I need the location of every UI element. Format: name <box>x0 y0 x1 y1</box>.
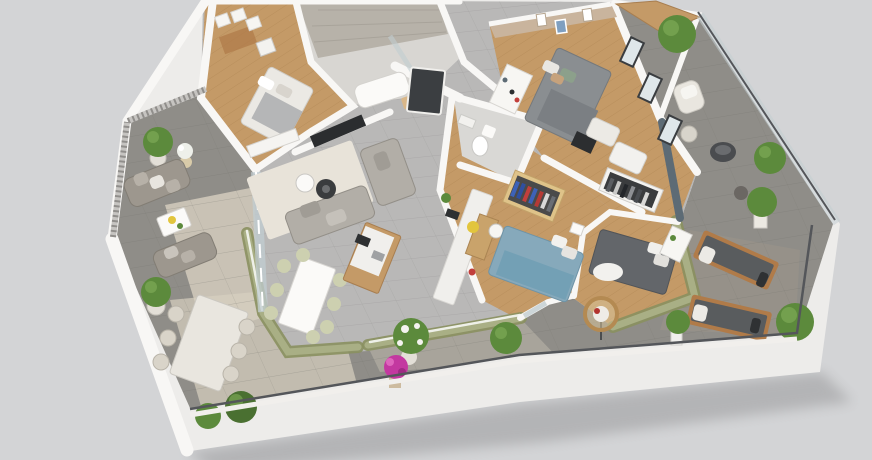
tree-highlight <box>759 146 771 158</box>
floorplan-render <box>0 0 872 460</box>
pouf <box>681 126 697 142</box>
shelf-decor <box>510 90 515 95</box>
coffee-machine <box>469 269 476 276</box>
pink-flowers-highlight <box>386 358 394 366</box>
white-blossom <box>401 325 409 333</box>
basket <box>734 186 748 200</box>
bush-highlight <box>781 307 797 323</box>
table-decor-yellow <box>168 216 176 224</box>
front-door <box>407 67 445 114</box>
outdoor-chair <box>223 366 239 382</box>
dining-chair <box>320 320 334 334</box>
shelf-decor <box>515 98 520 103</box>
tree-highlight <box>147 131 159 143</box>
white-blossom <box>397 340 403 346</box>
potted-tree <box>754 142 786 174</box>
dining-chair <box>264 306 278 320</box>
potted-tree <box>747 187 777 217</box>
bed3-fur-throw <box>593 263 623 281</box>
toilet <box>472 136 488 156</box>
shelf-decor <box>503 78 508 83</box>
white-blossom <box>417 339 423 345</box>
tree-highlight <box>663 20 679 36</box>
white-blossom <box>414 323 420 329</box>
dining-chair <box>270 283 284 297</box>
potted-tree <box>658 15 696 53</box>
dining-chair <box>296 248 310 262</box>
outdoor-chair <box>160 330 176 346</box>
desk-chair-white <box>489 224 503 238</box>
bowl-chair-cushion <box>715 145 731 155</box>
table-decor-plant <box>177 223 183 229</box>
coffee-table-decor <box>322 185 330 193</box>
desk-chair-yellow <box>467 221 479 233</box>
outdoor-chair <box>168 306 184 322</box>
egg-chair-cushion <box>593 306 609 322</box>
outdoor-chair <box>231 343 247 359</box>
outdoor-chair <box>239 319 255 335</box>
potted-plant <box>666 310 690 334</box>
white-flowers <box>177 143 193 159</box>
outdoor-chair <box>153 354 169 370</box>
dining-chair <box>327 297 341 311</box>
dining-chair <box>306 330 320 344</box>
white-flower-shrub <box>393 318 429 354</box>
potted-bush <box>141 277 171 307</box>
shelf-plant <box>670 235 676 241</box>
floorplan-svg <box>0 0 872 460</box>
bush-highlight <box>495 327 507 339</box>
counter-plant <box>441 193 451 203</box>
bush-highlight <box>145 281 157 293</box>
coffee-table <box>296 174 314 192</box>
dining-chair <box>277 259 291 273</box>
potted-tree <box>143 127 173 157</box>
bush <box>490 322 522 354</box>
white-flowers <box>178 145 184 151</box>
egg-chair-pillow <box>594 308 600 314</box>
